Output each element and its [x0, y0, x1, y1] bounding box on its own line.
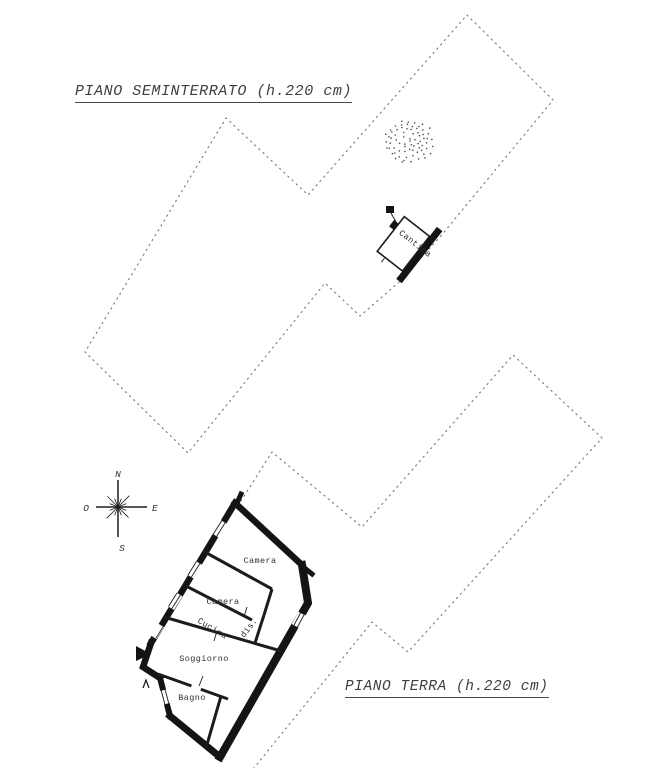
- cantina-marker-line: [391, 213, 396, 222]
- compass-label-west: O: [83, 503, 89, 514]
- door-gap-bagno: [190, 683, 202, 693]
- door-tick-bagno: [199, 676, 203, 686]
- cantina-door-tick: [381, 258, 384, 262]
- room-label-camera-1: Camera: [243, 556, 276, 566]
- room-label-bagno: Bagno: [178, 693, 206, 703]
- exterior-wall-protrusion: [143, 643, 160, 678]
- exterior-wall-right: [220, 565, 308, 757]
- compass-label-north: N: [115, 469, 121, 480]
- room-label-soggiorno: Soggiorno: [179, 654, 229, 664]
- piano-terra-building: Camera Camera Cucina dis. Soggiorno Bagn…: [136, 494, 312, 757]
- cantina-marker-square: [386, 206, 394, 213]
- window-bagno: [159, 689, 171, 705]
- partition-camera1-leg: [264, 589, 272, 615]
- compass-label-east: E: [152, 503, 158, 514]
- compass-label-south: S: [119, 543, 125, 554]
- plan-drawing: Cantina N S E O: [0, 0, 650, 768]
- parcel-boundary-seminterrato: [85, 15, 553, 453]
- floor-plan-sheet: PIANO SEMINTERRATO (h.220 cm) PIANO TERR…: [0, 0, 650, 768]
- wall-stub-top: [237, 494, 241, 503]
- partition-bagno-right: [206, 696, 221, 748]
- vegetation-patch: [385, 121, 434, 163]
- cantina-building: Cantina: [366, 203, 446, 286]
- compass-rose: [96, 480, 147, 537]
- room-label-camera-2: Camera: [206, 597, 239, 607]
- partition-dis-left: [255, 615, 264, 643]
- entrance-tick-mark: [143, 680, 149, 688]
